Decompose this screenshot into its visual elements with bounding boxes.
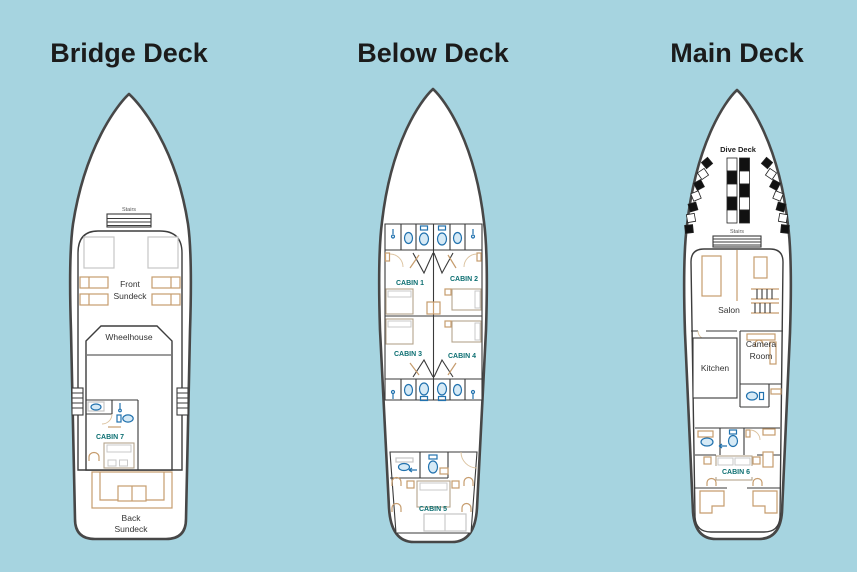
camera-room-label-1: Camera bbox=[746, 339, 777, 349]
front-sundeck-label-1: Front bbox=[120, 279, 140, 289]
main-stairs-label: Stairs bbox=[730, 229, 744, 235]
bridge-deck-plan: Stairs Front Sundeck Wheelhouse bbox=[60, 85, 205, 550]
below-deck-plan: CABIN 1 CABIN 2 CABIN 3 CABIN 4 bbox=[365, 80, 505, 555]
deck-plan-figure: Bridge Deck Below Deck Main Deck Stairs … bbox=[0, 0, 857, 572]
cabin4-label: CABIN 4 bbox=[448, 353, 476, 360]
sink-icon bbox=[91, 404, 101, 410]
main-stairs-icon bbox=[713, 236, 761, 247]
main-deck-title: Main Deck bbox=[670, 38, 804, 69]
bridge-stairs-icon bbox=[107, 214, 151, 227]
back-sundeck-label-2: Sundeck bbox=[114, 524, 148, 534]
sink-icon bbox=[405, 233, 413, 244]
below-deck-title: Below Deck bbox=[357, 38, 509, 69]
wheelhouse-label: Wheelhouse bbox=[105, 332, 153, 342]
cabin1-label: CABIN 1 bbox=[396, 280, 424, 287]
main-deck-plan: Dive Deck Stairs bbox=[670, 85, 805, 550]
salon-label: Salon bbox=[718, 305, 740, 315]
sink-icon bbox=[701, 438, 713, 446]
sink-icon bbox=[405, 385, 413, 396]
shared-nightstand bbox=[427, 302, 440, 314]
kitchen-label: Kitchen bbox=[701, 363, 730, 373]
camera-room-label-2: Room bbox=[750, 351, 773, 361]
cabin3-label: CABIN 3 bbox=[394, 351, 422, 358]
cabin3-bed bbox=[386, 319, 413, 344]
cabin2-label: CABIN 2 bbox=[450, 276, 478, 283]
dive-deck-label: Dive Deck bbox=[720, 145, 757, 154]
cabin6-label: CABIN 6 bbox=[722, 469, 750, 476]
wardrobe bbox=[763, 452, 773, 467]
cabin7-bed bbox=[104, 443, 134, 468]
cabin5-label: CABIN 5 bbox=[419, 506, 447, 513]
back-sundeck-bench bbox=[92, 472, 172, 508]
bridge-stairs-label: Stairs bbox=[122, 207, 136, 213]
sink-icon bbox=[454, 385, 462, 396]
sink-icon bbox=[399, 464, 410, 471]
cabin1-bed bbox=[386, 289, 413, 314]
front-sundeck-label-2: Sundeck bbox=[113, 291, 147, 301]
bridge-deck-title: Bridge Deck bbox=[50, 38, 208, 69]
back-sundeck-label-1: Back bbox=[122, 513, 142, 523]
cabin7-label: CABIN 7 bbox=[96, 434, 124, 441]
salon-table bbox=[702, 256, 721, 296]
sink-icon bbox=[454, 233, 462, 244]
stern-bench bbox=[424, 514, 466, 531]
